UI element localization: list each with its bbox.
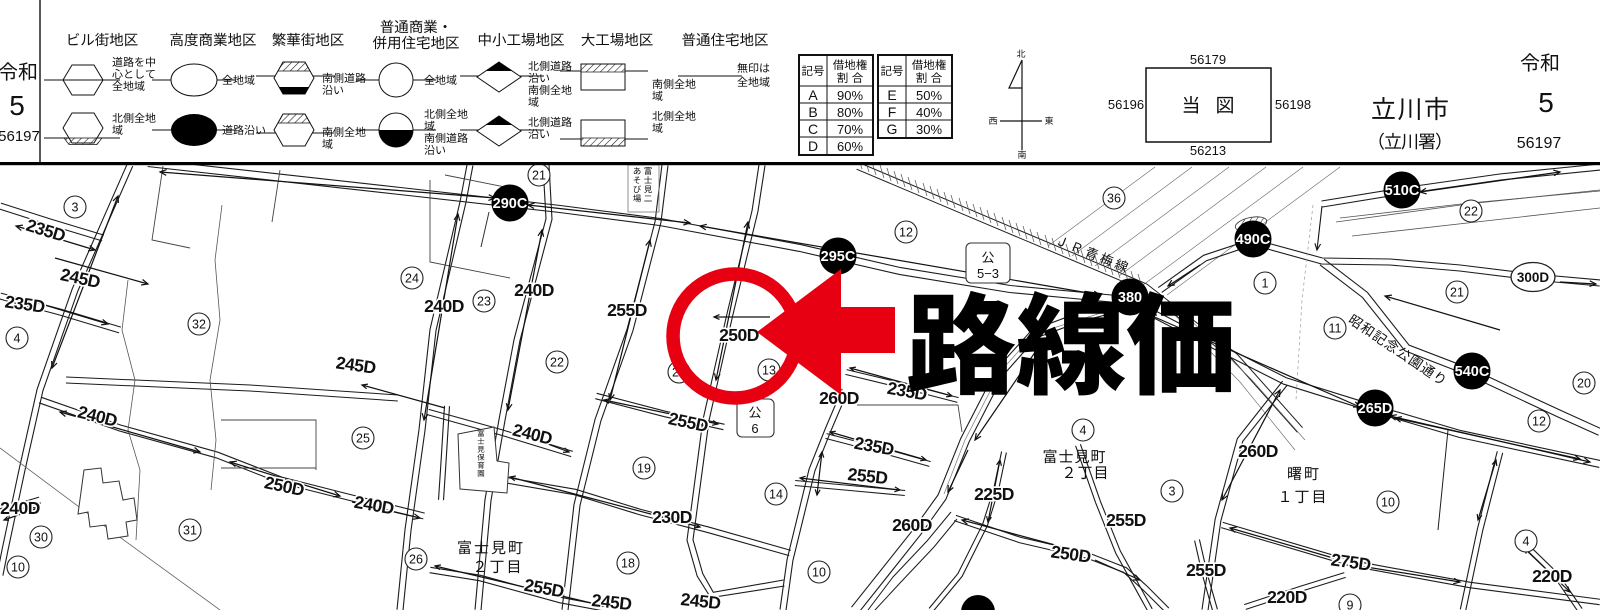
svg-text:255D: 255D	[847, 464, 889, 488]
svg-text:6: 6	[751, 421, 758, 436]
svg-text:24: 24	[405, 271, 419, 285]
svg-text:250D: 250D	[719, 325, 759, 345]
svg-text:23: 23	[477, 294, 491, 308]
svg-text:245D: 245D	[591, 590, 633, 610]
svg-text:32: 32	[192, 317, 206, 331]
svg-text:260D: 260D	[1238, 441, 1278, 461]
svg-text:19: 19	[637, 461, 651, 475]
svg-text:240D: 240D	[424, 296, 464, 316]
svg-text:56197: 56197	[0, 128, 40, 145]
svg-text:510C: 510C	[1385, 183, 1420, 199]
svg-text:240D: 240D	[514, 280, 554, 300]
svg-text:5: 5	[1538, 87, 1554, 118]
svg-text:56197: 56197	[1517, 135, 1562, 152]
svg-text:1: 1	[1262, 276, 1269, 290]
svg-text:56179: 56179	[1190, 52, 1226, 67]
svg-text:490C: 490C	[1236, 232, 1271, 248]
svg-text:5: 5	[9, 90, 25, 121]
svg-text:50%: 50%	[916, 88, 942, 103]
svg-text:90%: 90%	[837, 88, 863, 103]
svg-text:10: 10	[11, 560, 25, 574]
svg-text:22: 22	[1464, 204, 1478, 218]
svg-text:13: 13	[762, 363, 776, 377]
svg-text:255D: 255D	[607, 300, 647, 320]
svg-text:290C: 290C	[493, 196, 528, 212]
svg-text:31: 31	[183, 523, 197, 537]
svg-text:220D: 220D	[1267, 587, 1307, 607]
svg-text:26: 26	[409, 552, 423, 566]
svg-text:25: 25	[356, 431, 370, 445]
svg-text:4: 4	[1080, 423, 1087, 437]
svg-text:245D: 245D	[680, 589, 722, 610]
svg-text:220D: 220D	[1532, 566, 1572, 586]
svg-text:4: 4	[14, 331, 21, 345]
svg-text:21: 21	[532, 168, 546, 182]
svg-text:12: 12	[1532, 414, 1546, 428]
svg-text:30%: 30%	[916, 122, 942, 137]
svg-text:230D: 230D	[652, 507, 692, 527]
svg-text:295C: 295C	[821, 249, 856, 265]
svg-text:D: D	[808, 138, 818, 154]
svg-text:240D: 240D	[0, 498, 40, 518]
svg-text:255D: 255D	[1186, 560, 1226, 580]
svg-text:C: C	[808, 121, 818, 137]
svg-text:22: 22	[550, 355, 564, 369]
svg-text:9: 9	[1347, 598, 1354, 610]
svg-text:3: 3	[1169, 484, 1176, 498]
svg-text:4: 4	[1523, 534, 1530, 548]
svg-text:265D: 265D	[1358, 401, 1393, 417]
svg-text:540C: 540C	[1455, 364, 1490, 380]
svg-text:B: B	[808, 104, 817, 120]
svg-text:225D: 225D	[974, 484, 1014, 504]
svg-text:300D: 300D	[1517, 270, 1550, 285]
svg-text:12: 12	[899, 225, 913, 239]
svg-text:18: 18	[621, 556, 635, 570]
svg-text:30: 30	[34, 530, 48, 544]
svg-text:F: F	[888, 104, 897, 120]
svg-text:56196: 56196	[1108, 97, 1144, 112]
svg-text:G: G	[887, 121, 898, 137]
svg-text:40%: 40%	[916, 105, 942, 120]
svg-text:14: 14	[769, 487, 783, 501]
svg-text:5−3: 5−3	[977, 266, 999, 281]
svg-text:A: A	[808, 87, 818, 103]
svg-text:56213: 56213	[1190, 143, 1226, 158]
svg-text:70%: 70%	[837, 122, 863, 137]
svg-text:60%: 60%	[837, 139, 863, 154]
svg-text:21: 21	[1450, 285, 1464, 299]
svg-text:10: 10	[1381, 495, 1395, 509]
svg-text:56198: 56198	[1275, 97, 1311, 112]
svg-text:36: 36	[1107, 191, 1121, 205]
svg-text:E: E	[887, 87, 896, 103]
svg-text:260D: 260D	[892, 515, 932, 535]
svg-text:380: 380	[1118, 290, 1142, 306]
svg-text:80%: 80%	[837, 105, 863, 120]
svg-text:11: 11	[1329, 321, 1342, 335]
svg-text:3: 3	[72, 200, 79, 214]
svg-text:255D: 255D	[1106, 510, 1146, 530]
svg-text:10: 10	[812, 565, 826, 579]
svg-text:20: 20	[1577, 376, 1591, 390]
